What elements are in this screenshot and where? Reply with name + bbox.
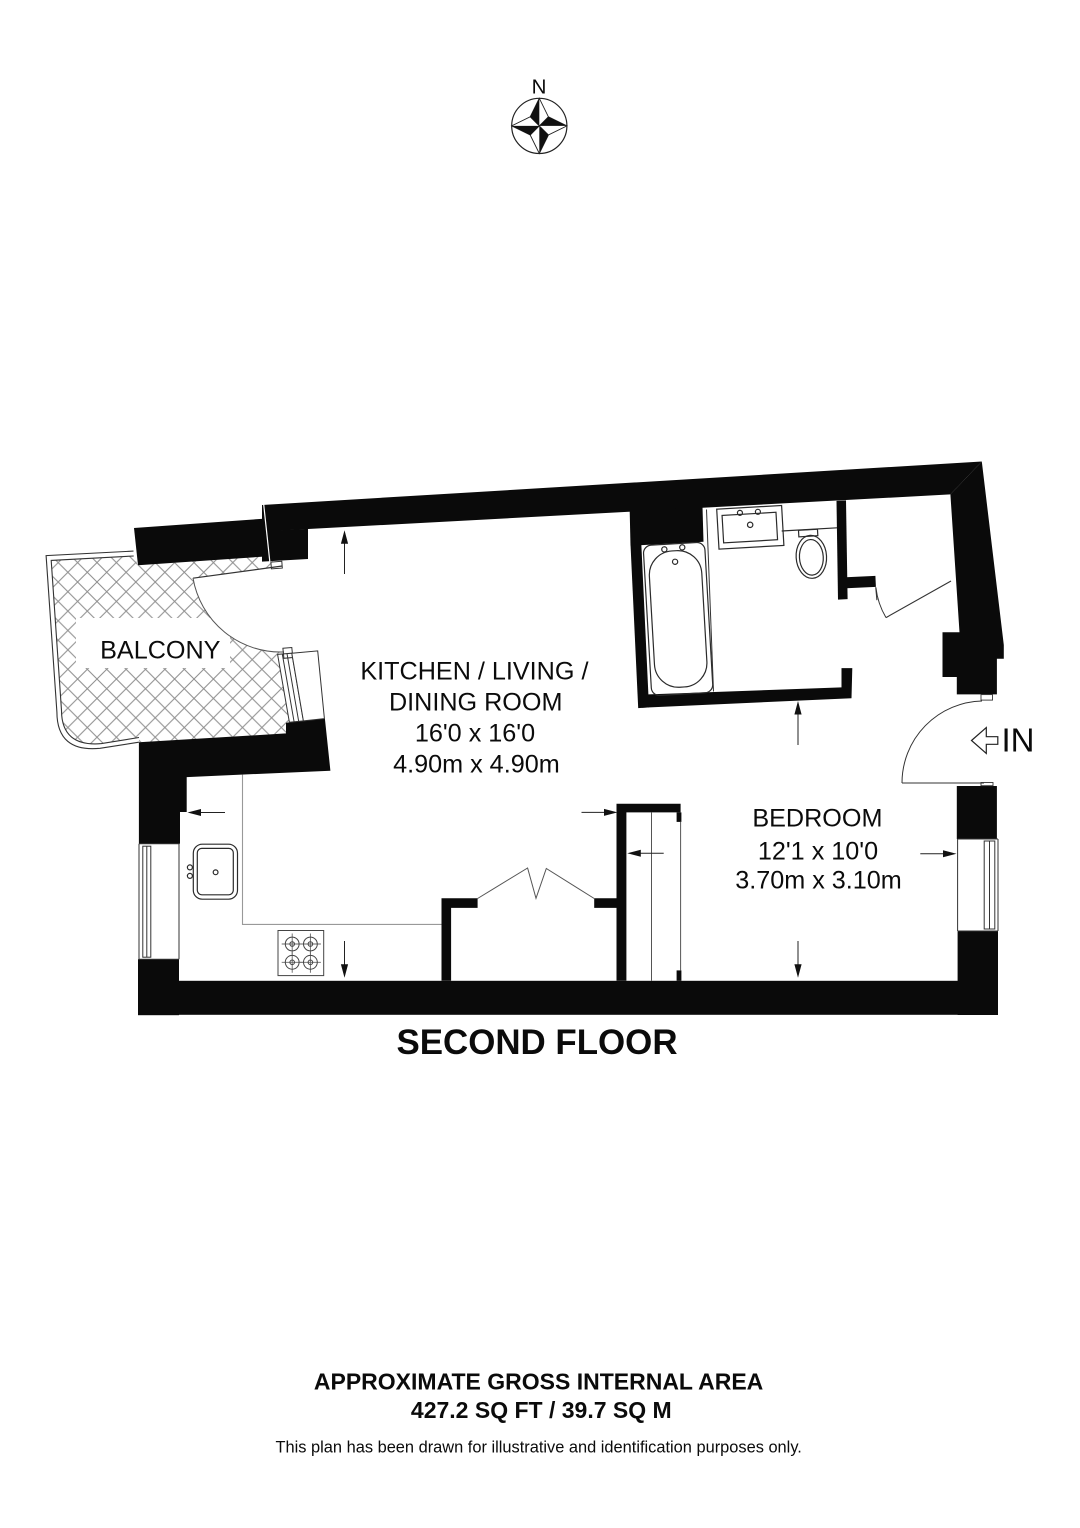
svg-text:12'1 x 10'0: 12'1 x 10'0	[758, 837, 878, 865]
svg-text:3.70m x 3.10m: 3.70m x 3.10m	[735, 867, 902, 895]
svg-text:BALCONY: BALCONY	[100, 637, 221, 665]
svg-text:N: N	[532, 76, 547, 99]
svg-text:427.2 SQ FT / 39.7 SQ M: 427.2 SQ FT / 39.7 SQ M	[411, 1397, 672, 1423]
svg-text:16'0 x 16'0: 16'0 x 16'0	[415, 719, 535, 747]
svg-text:IN: IN	[1002, 721, 1035, 758]
svg-text:APPROXIMATE GROSS INTERNAL ARE: APPROXIMATE GROSS INTERNAL AREA	[314, 1369, 763, 1395]
svg-text:SECOND FLOOR: SECOND FLOOR	[396, 1023, 677, 1062]
svg-text:DINING ROOM: DINING ROOM	[389, 688, 563, 716]
svg-text:KITCHEN / LIVING /: KITCHEN / LIVING /	[360, 657, 588, 685]
svg-text:BEDROOM: BEDROOM	[752, 805, 882, 833]
svg-text:4.90m x 4.90m: 4.90m x 4.90m	[393, 750, 560, 778]
svg-text:This plan has been drawn for i: This plan has been drawn for illustrativ…	[276, 1439, 802, 1457]
